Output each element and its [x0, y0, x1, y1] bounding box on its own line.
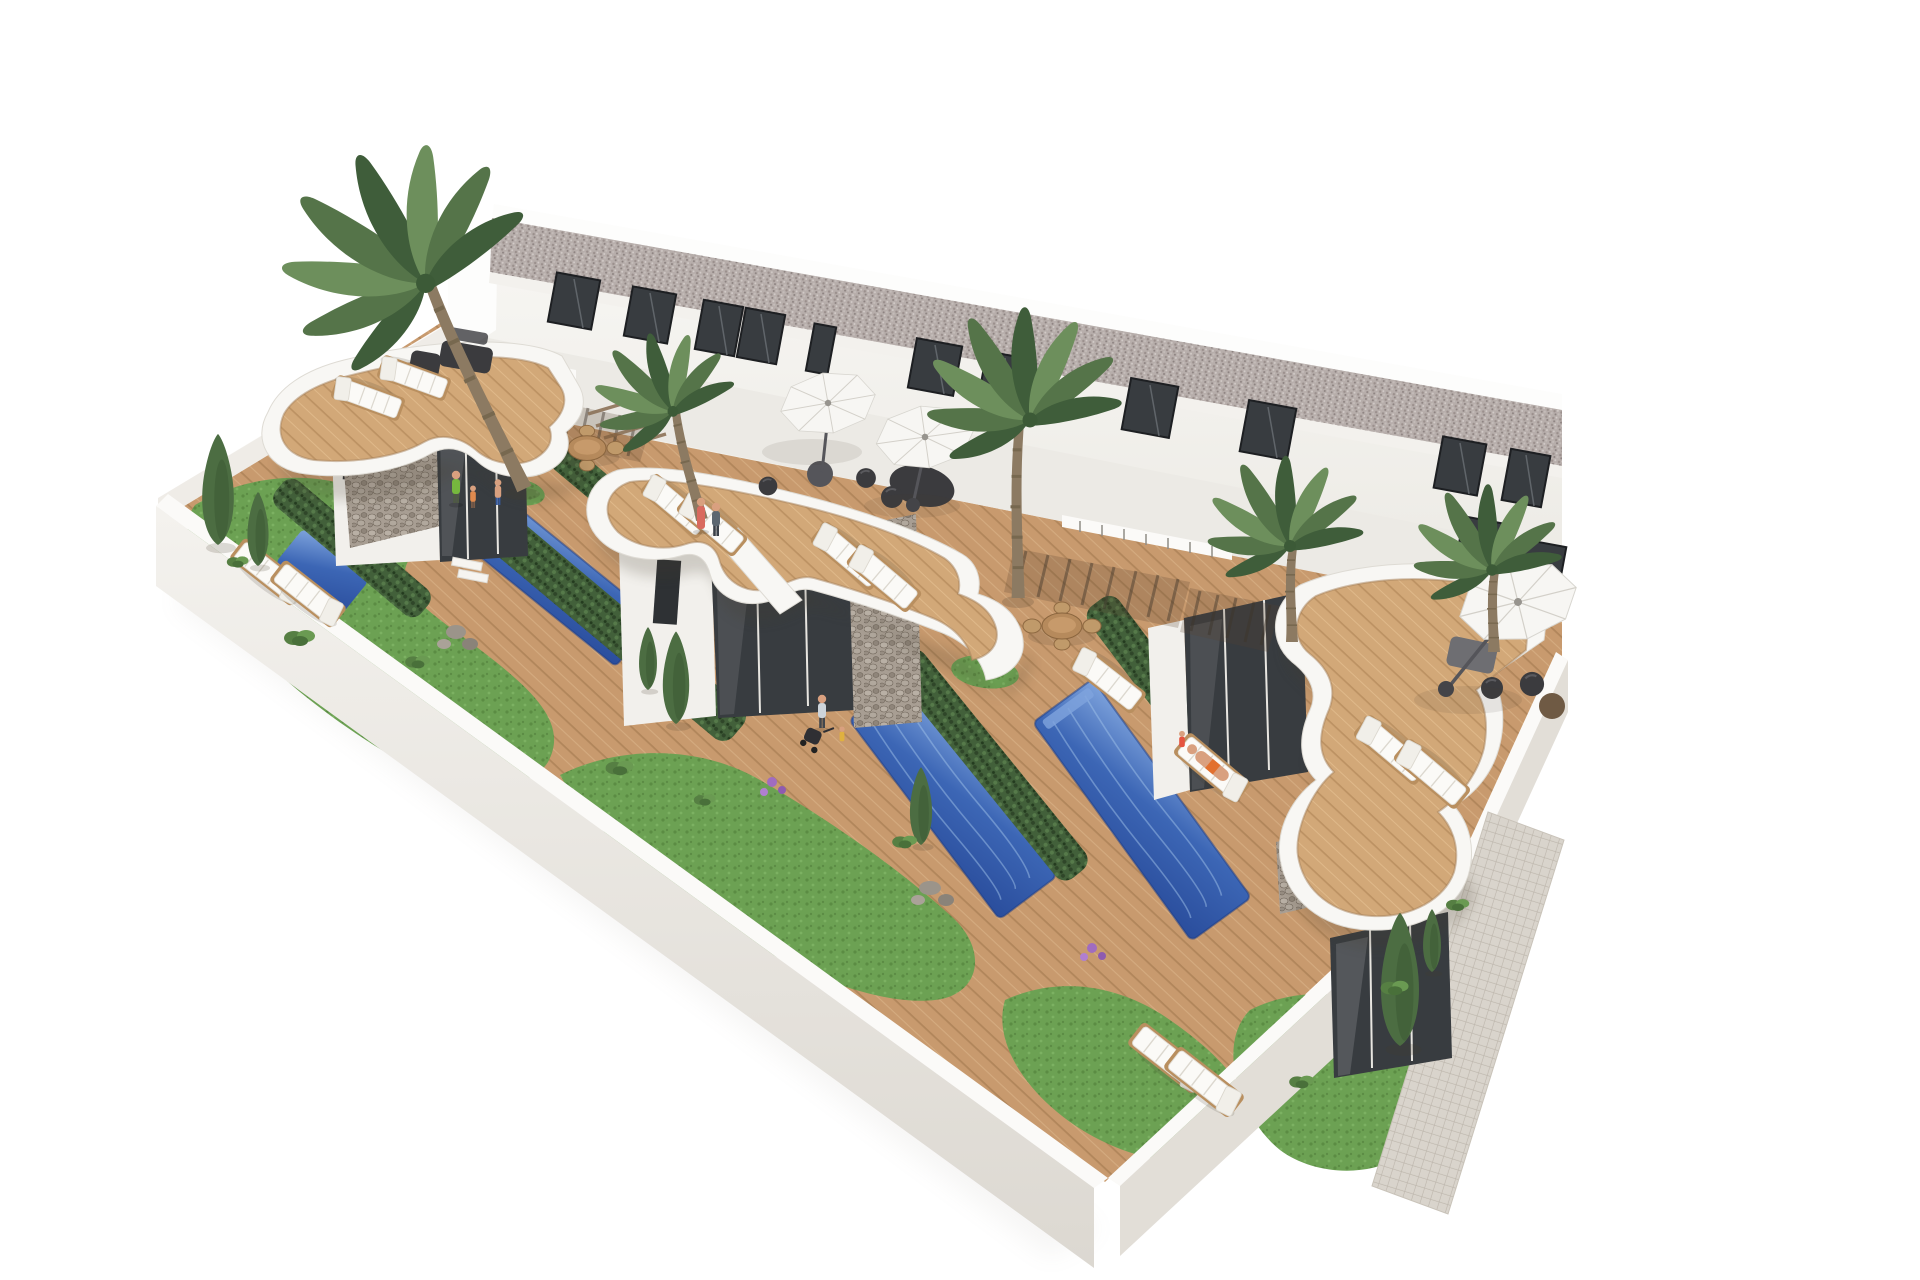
wicker-chair-terrace4 — [1539, 693, 1565, 719]
pouf-terrace3-a — [856, 468, 876, 488]
terrace-unit1 — [262, 327, 584, 477]
unit3-white-wall — [1148, 620, 1190, 800]
person-sitting-pool3 — [1179, 731, 1185, 747]
pouf-terrace2 — [759, 477, 778, 496]
architectural-render: Aerial 3D architectural rendering of fou… — [0, 0, 1920, 1280]
pouf-terrace4-b — [1520, 672, 1544, 696]
render-canvas: Aerial 3D architectural rendering of fou… — [0, 0, 1920, 1280]
person-toddler — [839, 727, 844, 742]
